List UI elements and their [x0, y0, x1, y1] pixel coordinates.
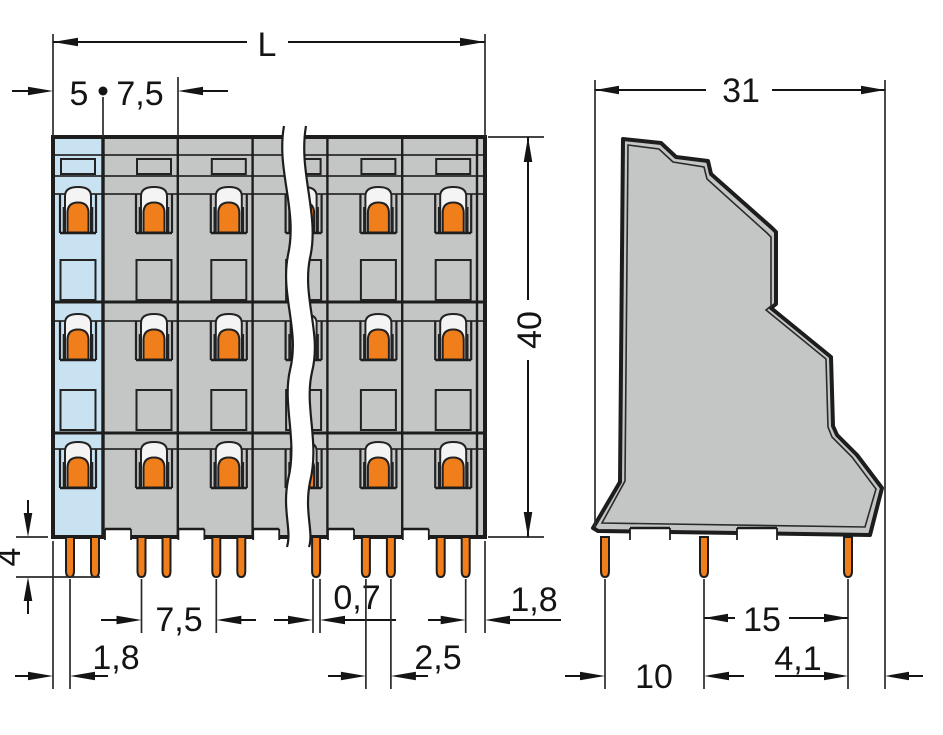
clamp-unit	[360, 187, 396, 233]
solder-pin	[362, 537, 370, 577]
clamp-unit	[136, 442, 172, 488]
solder-pin	[138, 537, 146, 577]
clamp-unit	[211, 314, 247, 360]
dim-label-L: L	[258, 26, 277, 64]
clamp-unit	[211, 442, 247, 488]
solder-pin	[91, 537, 99, 577]
solder-pin	[437, 537, 445, 577]
clamp-unit	[211, 187, 247, 233]
clamp-unit	[60, 442, 96, 488]
dim-label-4-1: 4,1	[774, 640, 821, 678]
dim-dot	[99, 87, 108, 96]
solder-pin	[66, 537, 74, 577]
dim-label-2-5: 2,5	[414, 639, 461, 677]
dim-label-31: 31	[722, 72, 760, 110]
housing-body	[53, 137, 485, 537]
solder-pin	[163, 537, 171, 577]
solder-pin	[387, 537, 395, 577]
clamp-unit	[435, 187, 471, 233]
solder-pin	[700, 537, 708, 577]
dim-label-40: 40	[511, 311, 549, 349]
solder-pin	[844, 537, 852, 577]
solder-pin	[312, 537, 320, 577]
clamp-unit	[60, 314, 96, 360]
dim-label-10: 10	[635, 658, 673, 696]
solder-pin	[601, 537, 609, 577]
solder-pin	[462, 537, 470, 577]
solder-pin	[212, 537, 220, 577]
dim-label-4: 4	[0, 548, 28, 567]
solder-pin	[237, 537, 245, 577]
dim-label-5: 5	[70, 75, 89, 113]
clamp-unit	[435, 314, 471, 360]
dim-label-7-5-bottom: 7,5	[155, 601, 202, 639]
terminal-block-drawing: L 5 7,5 40 4 7,	[0, 0, 943, 735]
clamp-unit	[136, 314, 172, 360]
clamp-unit	[136, 187, 172, 233]
front-view	[53, 126, 485, 577]
technical-drawing-page: L 5 7,5 40 4 7,	[0, 0, 943, 735]
clamp-unit	[360, 314, 396, 360]
clamp-unit	[60, 187, 96, 233]
dim-label-1-8-left: 1,8	[92, 639, 139, 677]
dim-label-1-8-right: 1,8	[510, 581, 557, 619]
clamp-unit	[360, 442, 396, 488]
dim-label-7-5: 7,5	[116, 75, 163, 113]
dim-label-0-7: 0,7	[333, 579, 380, 617]
clamp-unit	[435, 442, 471, 488]
dim-label-15: 15	[743, 601, 781, 639]
